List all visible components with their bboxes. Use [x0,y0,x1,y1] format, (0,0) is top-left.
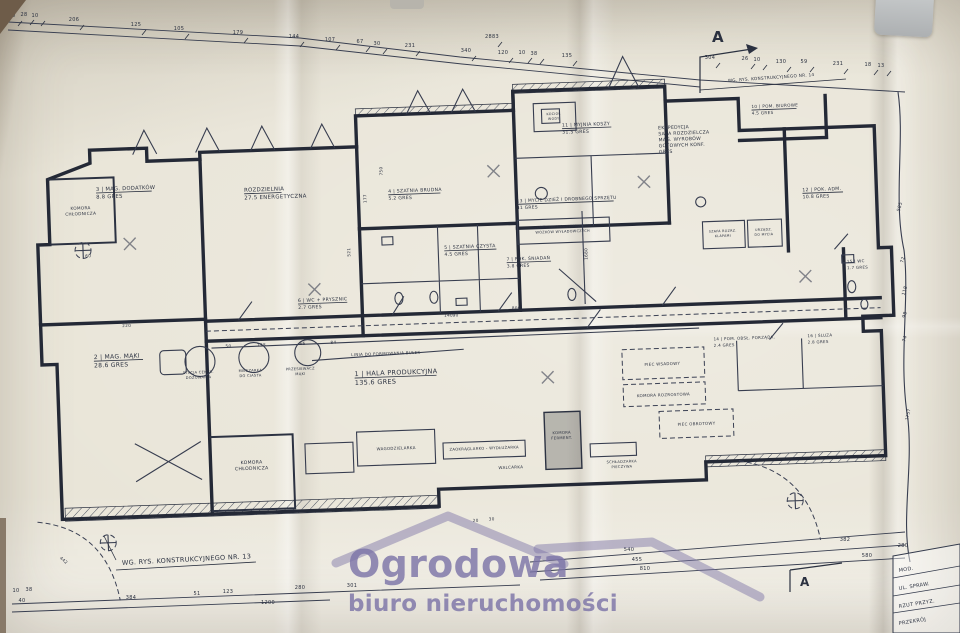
room-label: 135.6 GRES [355,378,397,387]
dim-bottom: 38 [26,587,33,593]
equipment-label: WAGODZIELARKA [376,445,415,451]
cross-smudge-marks [122,154,815,398]
note-underline [700,79,846,90]
dim-misc: 90 [452,312,458,317]
dim-bottom: 382 [840,537,850,543]
dim-tick [30,20,34,25]
dim-tick [573,61,577,66]
equipment-label: SZAFA ROZRZ. [709,229,737,234]
dim-misc: 800 [512,305,521,310]
dim-top: 105 [174,26,184,32]
sink-fixture [456,298,467,305]
equipment-label: DO CIASTA [239,373,261,378]
room-label: 15 | WC [847,258,865,264]
grey-tape-small [390,0,424,9]
dim-tick [540,59,544,64]
room-label: 8.8 GRES [96,194,123,201]
equipment-label: SCHŁADZARKA [607,459,638,464]
dim-top: 26 [742,56,749,62]
note-leader [104,536,116,560]
dim-misc: 30 [489,516,495,521]
watermark: Ogrodowa biuro nieruchomości [336,516,760,617]
dim-tick [185,34,189,39]
watermark-subtitle: biuro nieruchomości [348,591,618,617]
room-label: 1.7 GRES [847,264,868,270]
dim-misc: 60 [85,253,91,258]
equipment-label: PIECZYWA [611,465,632,470]
ekspedycja-line: EKSPEDYCJA [658,124,690,131]
dim-misc: 442 [59,555,69,565]
equipment-round [696,197,706,207]
dim-misc: 177 [362,194,367,203]
dim-tick [336,45,340,50]
dim-misc: 521 [346,248,351,257]
equipment-label: ZAOKRĄGLARKO - WYDŁUŻARKA [449,444,519,451]
room-label: 27.5 ENERGETYCZNA [244,193,307,201]
equipment-box [305,442,354,474]
room-label: 31.5 GRES [562,129,589,136]
fermentation-chamber-box [544,411,582,469]
dim-bottom: 280 [295,585,305,591]
toilet-fixture [568,288,576,300]
equipment-label: CHŁODNICZA [235,465,269,472]
note-konstrukcyjny-13: WG. RYS. KONSTRUKCYJNEGO NR. 13 [122,552,252,567]
dim-misc: 1680 [583,248,588,260]
dim-misc: 750 [378,166,383,175]
title-block: MOD. UL. SPRAW. RZUT PRZYZ. PRZEKRÓJ [893,544,960,633]
equipment-label: LINIA DO FORMOWANIA BUŁEK [351,350,420,357]
dim-right: 98 [901,311,908,319]
dim-top: 130 [776,59,786,65]
dim-top: 30 [374,41,381,47]
dim-tick [874,70,878,75]
dim-misc: 84 [330,340,336,345]
dim-tick [787,67,791,72]
watermark-brand: Ogrodowa [348,542,569,586]
equipment-label: WALCARKA [498,464,523,470]
dim-tick [763,65,767,70]
equipment-label: KOCIOŁ [546,112,560,116]
equipment-label: PRZESIEWACZ [286,366,315,371]
toilet-fixture [430,291,438,303]
room-label: 14 | POM. OBSŁ. PORZĄDK. [713,334,775,341]
dim-top: 144 [289,34,299,40]
dimension-chain-top [8,22,905,92]
section-letter-bottom: A [800,575,810,589]
dim-bottom: 810 [640,566,650,572]
dim-top: 125 [131,22,141,28]
room-label: 28.6 GRES [94,361,129,369]
dim-top: 13 [878,63,885,69]
dim-bottom: 40 [19,598,26,604]
dim-top: 231 [833,61,843,67]
roof-window-symbols [130,56,641,155]
room-label: 2.4 GRES [714,342,735,348]
dim-tick [751,64,755,69]
property-boundary-line [898,92,910,562]
equipment-label: PIEC WSADOWY [644,361,680,367]
building-plan: EKSPEDYCJA SALA ROZDZIELCZA MAG. WYROBÓW… [22,47,917,603]
equipment-label: KOMORA [240,459,263,466]
room-label: 41 GRES [517,204,538,211]
photo-edge-table [0,518,6,633]
dim-bottom: 10 [13,588,20,594]
equipment-label: CHŁODNICZA [65,211,96,217]
room-label: 10.8 GRES [803,193,830,200]
dim-bottom: 384 [126,595,136,601]
ekspedycja-line: GRES [659,149,673,155]
dim-right: 585 [896,201,904,212]
dim-top: 10 [519,50,526,56]
dim-misc: 66 [299,341,305,346]
dim-top: 107 [325,37,335,43]
dim-top: 179 [233,30,243,36]
equipment-label: PIEC OBROTOWY [677,421,715,427]
dim-misc: 50 [225,343,231,348]
dim-top: 2883 [485,34,499,40]
sink-fixture [382,237,393,245]
section-marker-bottom: A [790,563,842,592]
dim-misc: 140 [444,313,453,318]
equipment-label: MĄKI [295,372,305,376]
room-label: 4.5 GRES [752,110,774,116]
dim-misc: 138 [257,342,266,347]
toilet-fixture [848,281,856,293]
dim-top: 135 [562,53,572,59]
dim-top: 231 [405,43,415,49]
dim-bottom: 123 [223,589,233,595]
dim-tick [18,21,22,26]
dim-right: 72 [899,256,906,264]
dim-tick [528,58,532,63]
dim-top: 340 [461,48,471,54]
dim-bottom: 580 [862,553,872,559]
dim-bottom: 51 [194,591,201,597]
dim-tick [142,30,146,35]
dim-right: 118 [901,285,909,296]
grey-tape [874,0,934,37]
room-label: 10 | POM. BIUROWE [751,102,798,109]
room-label: 2.7 GRES [298,304,322,311]
note-konstrukcyjny-14: WG. RYS. KONSTRUKCYJNEGO NR. 14 [728,72,815,83]
equipment-box [590,442,636,457]
equipment-label: KOMORA ROZROSTOWA [637,391,690,398]
equipment-label: WODY [548,117,560,121]
dim-misc: 1757 [904,408,912,421]
dim-top: 18 [865,62,872,68]
dim-tick [366,47,370,52]
dim-bottom: 1200 [261,600,275,606]
dim-top: 10 [32,13,39,19]
detail-lines [69,48,888,552]
dim-tick [716,63,720,68]
section-letter-top: A [712,28,724,46]
dim-tick [383,49,387,54]
dim-bottom: 455 [632,557,642,563]
dim-top: 67 [357,39,364,45]
floorplan-drawing: EKSPEDYCJA SALA ROZDZIELCZA MAG. WYROBÓW… [0,0,960,633]
equipment-label: KLAPAMI [715,234,731,239]
ekspedycja-label: EKSPEDYCJA SALA ROZDZIELCZA MAG. WYROBÓW… [658,124,711,156]
equipment-label: FERMENT. [551,435,572,441]
dim-tick [844,69,848,74]
room-label: 4.5 GRES [444,251,468,258]
dim-top: 120 [498,50,508,56]
dim-top: 206 [69,17,79,23]
dim-top: 10 [754,57,761,63]
dim-tick [498,42,502,47]
room-label: 16 | ŚLUZA [807,332,832,338]
mixer-circle [294,339,321,366]
room-label: 5.2 GRES [388,195,412,202]
room-label: 2.8 GRES [808,339,829,345]
dim-bottom: 280 [898,543,908,549]
dim-top: 59 [801,59,808,65]
dim-tick [887,71,891,76]
equipment-label: MIESZARKA [238,368,262,373]
photographed-floorplan: EKSPEDYCJA SALA ROZDZIELCZA MAG. WYROBÓW… [0,0,960,633]
room-label: 3.8 GRES [507,263,530,270]
dim-right: 74 [901,335,908,343]
equipment-label: DO MYCIA [754,232,773,237]
dim-tick [244,38,248,43]
dim-misc: 220 [122,323,131,328]
dim-top: 38 [531,51,538,57]
dim-top: 28 [21,12,28,18]
